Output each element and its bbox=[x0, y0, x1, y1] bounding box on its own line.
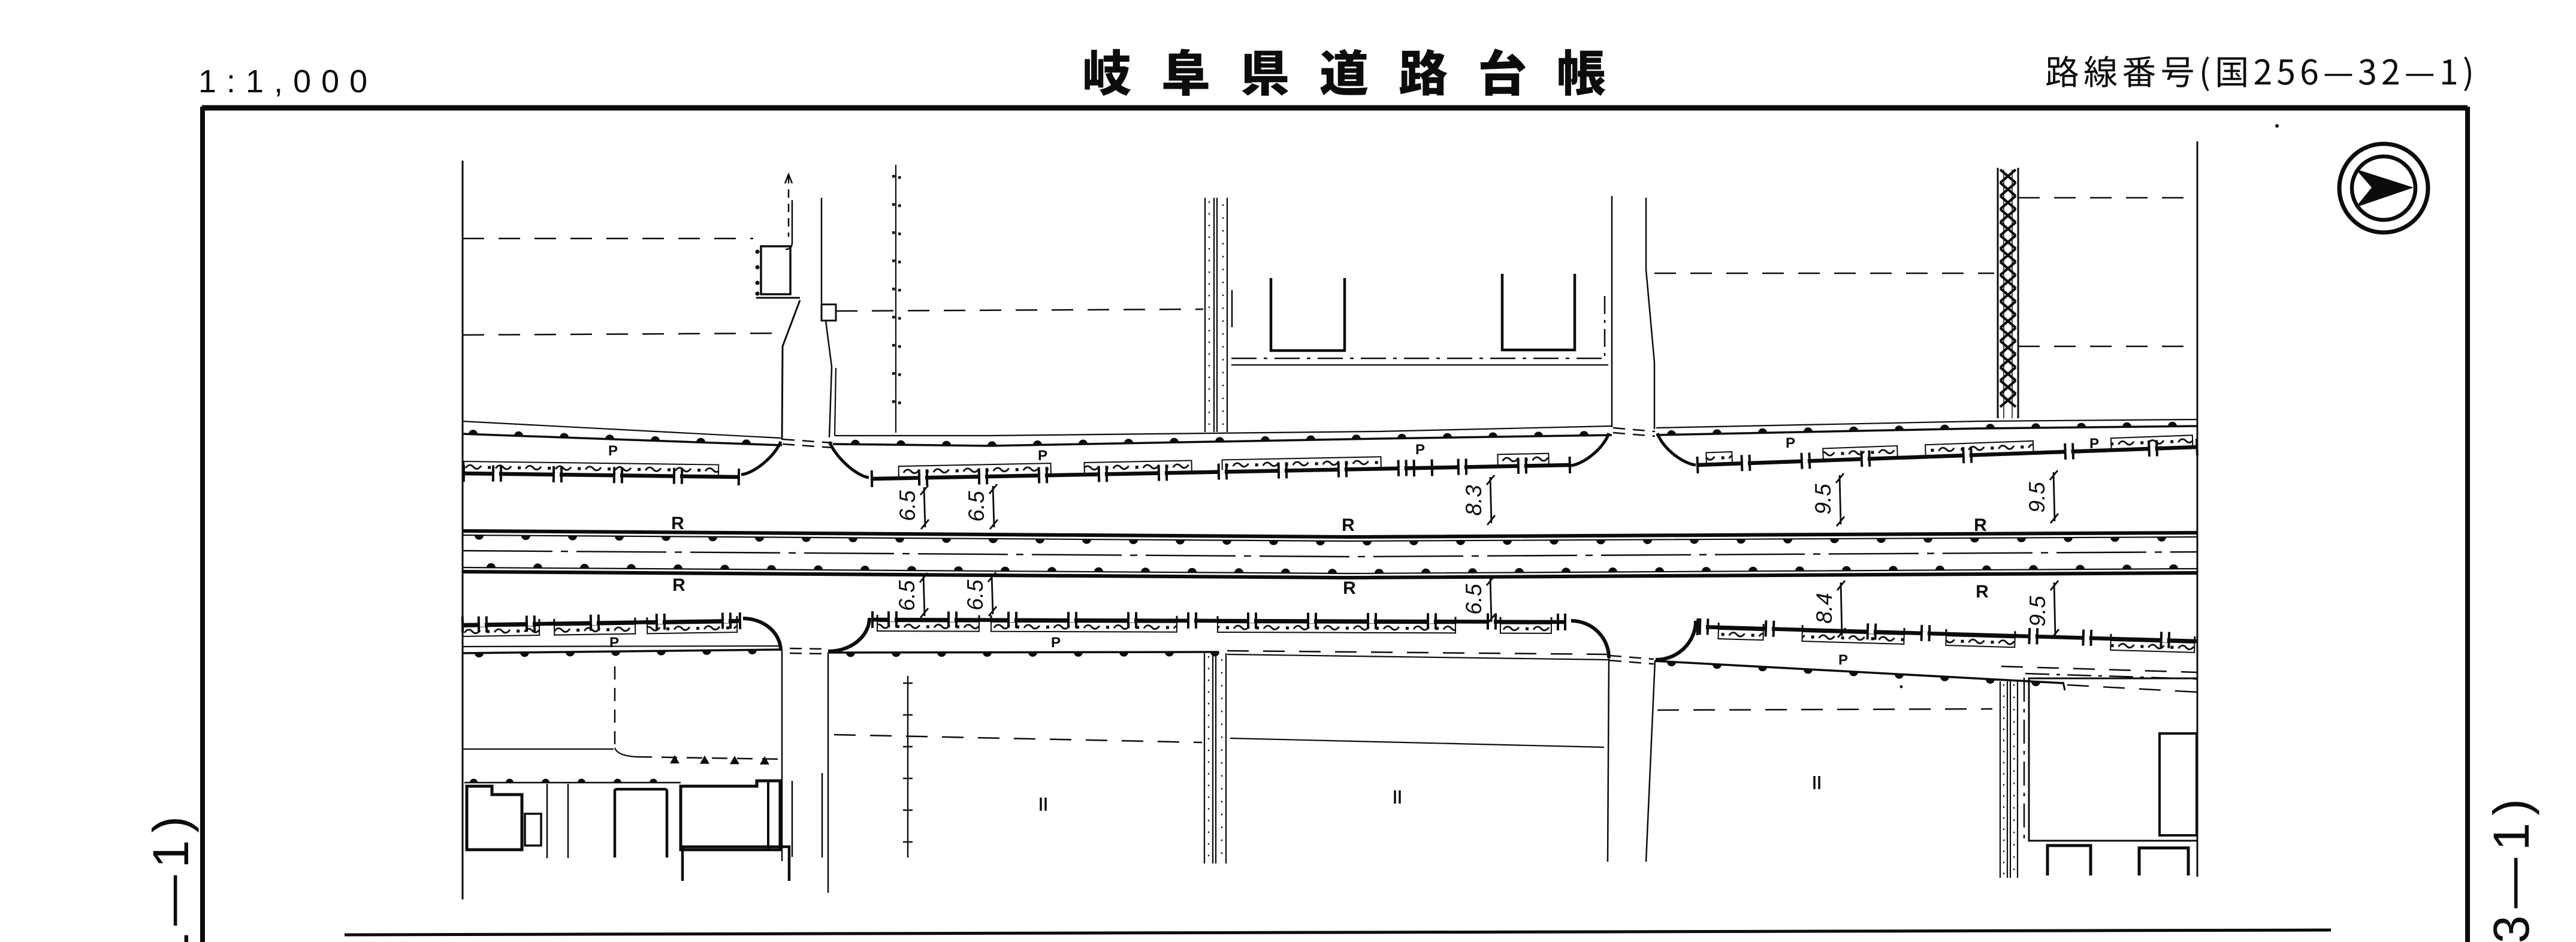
svg-text:6.5: 6.5 bbox=[1461, 584, 1486, 615]
svg-text:P: P bbox=[608, 443, 618, 459]
svg-text:8.3: 8.3 bbox=[1461, 485, 1486, 516]
svg-text:—33—1): —33—1) bbox=[2483, 792, 2539, 942]
svg-text:P: P bbox=[1051, 635, 1061, 651]
svg-text:6.5: 6.5 bbox=[963, 579, 987, 611]
svg-text:P: P bbox=[1786, 435, 1795, 451]
svg-text:P: P bbox=[609, 635, 619, 651]
svg-text:9.5: 9.5 bbox=[1811, 484, 1835, 515]
svg-text:6.5: 6.5 bbox=[895, 580, 919, 611]
svg-text:9.5: 9.5 bbox=[2025, 482, 2049, 513]
svg-text:R: R bbox=[1343, 578, 1356, 598]
svg-text:6.5: 6.5 bbox=[895, 490, 920, 521]
svg-text:P: P bbox=[1038, 448, 1047, 464]
svg-text:6.5: 6.5 bbox=[964, 491, 989, 522]
svg-text:P: P bbox=[2089, 436, 2099, 452]
svg-text:R: R bbox=[671, 514, 684, 533]
svg-text:8.4: 8.4 bbox=[1812, 593, 1837, 623]
svg-text:P: P bbox=[1838, 652, 1848, 668]
svg-text:9.5: 9.5 bbox=[2025, 596, 2050, 627]
svg-text:P: P bbox=[1415, 442, 1425, 458]
svg-text:R: R bbox=[1974, 515, 1987, 535]
svg-text:R: R bbox=[672, 575, 685, 595]
svg-text:1:1,000: 1:1,000 bbox=[198, 64, 378, 99]
svg-text:R: R bbox=[1976, 582, 1989, 602]
svg-text:R: R bbox=[1342, 515, 1355, 535]
svg-text:—31—1): —31—1) bbox=[143, 809, 199, 942]
